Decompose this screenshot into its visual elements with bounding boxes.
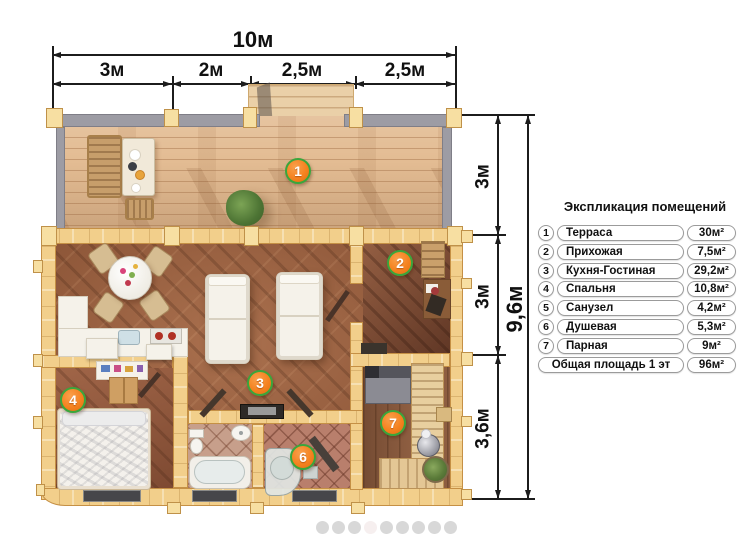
room-marker-6: 6 [290, 444, 316, 470]
sink-drain [239, 431, 243, 435]
wall-post [244, 226, 259, 246]
dim-line-right-total [527, 115, 529, 499]
room-name-pill: Прихожая [557, 244, 684, 260]
sauna-plant-tub [422, 456, 449, 483]
railing-post [349, 107, 363, 128]
sofa-seat-divider [280, 315, 319, 317]
wall-post [41, 226, 57, 246]
carousel-dot[interactable] [396, 521, 409, 534]
wall-post [461, 278, 472, 289]
arrowhead [495, 346, 501, 355]
arrowhead [52, 81, 61, 87]
arrowhead [495, 235, 501, 244]
wall-bedroom-right [173, 355, 188, 488]
legend-row-number: 6 [538, 319, 554, 335]
room-name-pill: Душевая [557, 319, 684, 335]
dim-line-right-segments [497, 115, 499, 499]
stove-burner [168, 332, 176, 340]
legend-row-number: 7 [538, 338, 554, 354]
dining-table [108, 256, 152, 300]
dim-label-segment: 2,5м [262, 61, 342, 80]
total-area-pill: Общая площадь 1 эт [538, 357, 684, 373]
dark-bowl [128, 162, 137, 171]
terrace-railing-top-left [52, 114, 260, 127]
stove-chimney [365, 366, 379, 378]
arrowhead [355, 81, 364, 87]
kitchen-island-box [86, 338, 118, 359]
room-marker-1: 1 [285, 158, 311, 184]
kitchen-sink [118, 330, 140, 345]
hallway-bench [361, 343, 387, 354]
legend-title: Экспликация помещений [545, 199, 745, 214]
legend-row-number: 3 [538, 263, 554, 279]
plate [131, 183, 141, 193]
sauna-shelf [436, 407, 452, 422]
arrowhead [52, 52, 61, 58]
legend-row-number: 2 [538, 244, 554, 260]
room-area-pill: 7,5м² [687, 244, 736, 260]
room-name-pill: Кухня-Гостиная [557, 263, 684, 279]
desk-decor [137, 365, 143, 372]
wall-post [164, 226, 180, 246]
sauna-ladle [421, 429, 431, 439]
wall-post [167, 502, 181, 514]
dim-label-right-segment: 3м [474, 137, 493, 217]
dim-line-total-width [52, 54, 455, 56]
flower-decor [120, 268, 126, 274]
kitchen-island-box [146, 344, 172, 360]
room-name-pill: Санузел [557, 300, 684, 316]
wall-post [36, 484, 45, 496]
sofa-headrest [279, 274, 320, 284]
legend-row-number: 5 [538, 300, 554, 316]
fireplace-insert [248, 407, 276, 415]
bathtub-basin [194, 460, 245, 484]
wall-bath-shower [252, 424, 264, 488]
desk-red-item [431, 287, 439, 295]
wall-post [461, 352, 473, 366]
toilet-tank [189, 429, 204, 438]
arrowhead [525, 490, 531, 499]
room-marker-2: 2 [387, 250, 413, 276]
wall-post [349, 226, 364, 246]
floor-plan-page: 10м 3м 2м 2,5м 2,5м 3м 3м 3,6м 9,6м Эксп… [0, 0, 755, 548]
carousel-dots [316, 521, 457, 534]
plate [129, 149, 141, 161]
bed-pillow [62, 411, 146, 426]
wall-post [33, 260, 43, 273]
desk-decor [114, 365, 121, 372]
dim-ext-line [455, 46, 457, 112]
room-area-pill: 4,2м² [687, 300, 736, 316]
carousel-dot[interactable] [412, 521, 425, 534]
dim-label-segment: 2м [171, 61, 251, 80]
flower-decor [129, 272, 135, 278]
carousel-dot[interactable] [364, 521, 377, 534]
terrace-side-table [125, 198, 154, 220]
legend-row-number: 4 [538, 281, 554, 297]
orange-flower [135, 170, 145, 180]
room-area-pill: 10,8м² [687, 281, 736, 297]
terrace-plant [226, 190, 264, 226]
arrowhead [495, 355, 501, 364]
dim-label-right-segment: 3,6м [474, 389, 493, 469]
carousel-dot[interactable] [316, 521, 329, 534]
railing-post [446, 108, 462, 128]
wall-post [461, 489, 472, 500]
room-name-pill: Спальня [557, 281, 684, 297]
arrowhead [446, 81, 455, 87]
dim-label-segment: 2,5м [365, 61, 445, 80]
room-area-pill: 5,3м² [687, 319, 736, 335]
room-area-pill: 30м² [687, 225, 736, 241]
carousel-dot[interactable] [444, 521, 457, 534]
box-flap-line [123, 378, 125, 403]
window [83, 490, 141, 502]
room-marker-3: 3 [247, 370, 273, 396]
toilet-bowl [190, 438, 203, 454]
window [292, 490, 337, 502]
arrowhead [495, 226, 501, 235]
dim-label-right-total: 9,6м [504, 267, 526, 351]
room-name-pill: Парная [557, 338, 684, 354]
railing-post [243, 107, 257, 128]
wall-post [250, 502, 264, 514]
railing-post [164, 109, 179, 127]
arrowhead [495, 490, 501, 499]
room-marker-4: 4 [60, 387, 86, 413]
wall-post [461, 416, 472, 427]
arrowhead [495, 115, 501, 124]
arrowhead [446, 52, 455, 58]
window [192, 490, 237, 502]
dim-label-total-width: 10м [193, 29, 313, 51]
carousel-dot[interactable] [428, 521, 441, 534]
room-name-pill: Терраса [557, 225, 684, 241]
hallway-shelf [421, 241, 445, 278]
arrowhead [163, 81, 172, 87]
wall-post [33, 354, 43, 367]
flower-decor [133, 264, 138, 269]
railing-post [46, 108, 63, 128]
carousel-dot[interactable] [332, 521, 345, 534]
dim-label-segment: 3м [72, 61, 152, 80]
arrowhead [172, 81, 181, 87]
wall-hallway-living-upper [350, 244, 363, 284]
room-area-pill: 29,2м² [687, 263, 736, 279]
flower-decor [125, 280, 131, 286]
terrace-railing-right [442, 127, 452, 230]
wall-post [33, 416, 43, 429]
total-area-value-pill: 96м² [687, 357, 736, 373]
dim-label-right-segment: 3м [474, 257, 493, 337]
sofa-headrest [208, 276, 247, 286]
wall-post [461, 230, 473, 243]
desk-decor [101, 365, 110, 372]
carousel-dot[interactable] [348, 521, 361, 534]
arrowhead [525, 115, 531, 124]
legend-row-number: 1 [538, 225, 554, 241]
wall-post [351, 502, 365, 514]
stove-burner [155, 332, 163, 340]
sofa-seat-divider [209, 318, 246, 320]
room-area-pill: 9м² [687, 338, 736, 354]
room-marker-7: 7 [380, 410, 406, 436]
carousel-dot[interactable] [380, 521, 393, 534]
terrace-lounger [87, 135, 122, 198]
desk-decor [125, 366, 133, 372]
terrace-railing-left [56, 127, 65, 230]
